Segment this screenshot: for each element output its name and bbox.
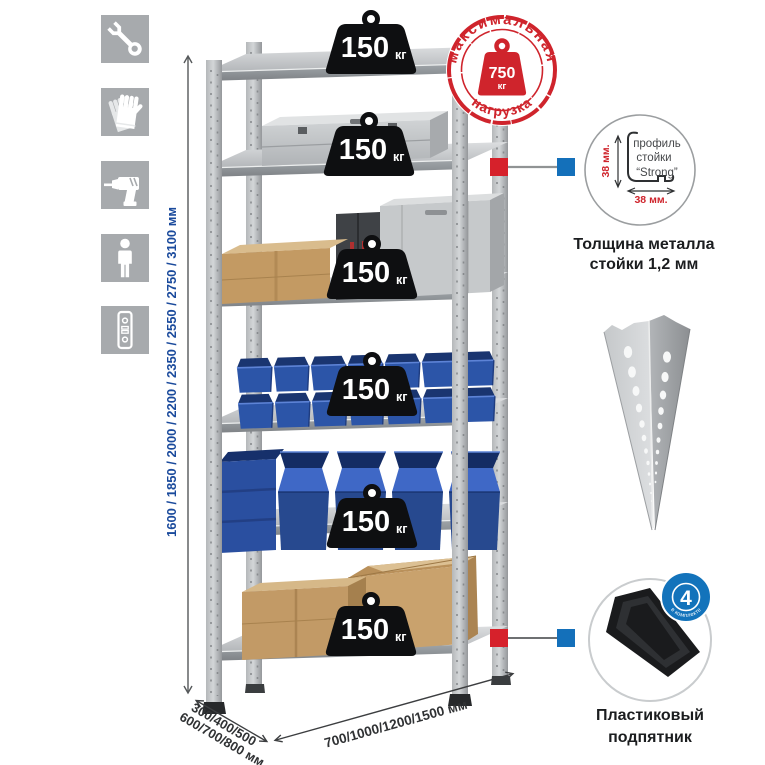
depth-dimension-label: 300/400/500 600/700/800 мм <box>177 697 274 765</box>
width-dimension-line <box>274 670 514 743</box>
svg-text:профиль: профиль <box>633 138 681 150</box>
svg-text:кг: кг <box>393 150 404 164</box>
plastic-foot-detail: 4 в комплекте <box>589 572 711 701</box>
svg-text:“Strong”: “Strong” <box>636 167 678 179</box>
svg-text:кг: кг <box>396 390 407 404</box>
foot-caption-line2: подпятник <box>608 729 693 746</box>
svg-text:150: 150 <box>342 257 390 289</box>
svg-text:150: 150 <box>342 374 390 406</box>
angle-post-image <box>604 315 690 530</box>
quantity-badge: 4 в комплекте <box>661 572 711 622</box>
svg-text:кг: кг <box>395 630 406 644</box>
product-infographic: 150 кг 150 кг 150 кг 150 кг 150 кг <box>0 0 765 765</box>
foot-callout-connector <box>490 629 575 647</box>
width-dimension-label: 700/1000/1200/1500 мм <box>323 697 469 751</box>
foot-caption-line1: Пластиковый <box>596 707 704 724</box>
svg-text:кг: кг <box>396 273 407 287</box>
svg-text:150: 150 <box>342 506 390 538</box>
profile-dim-horizontal: 38 мм. <box>634 194 667 206</box>
blue-marker-top <box>557 158 575 176</box>
rack-diagram: 150 кг 150 кг 150 кг 150 кг 150 кг <box>0 0 765 765</box>
load-value: 150 <box>341 32 389 64</box>
svg-text:кг: кг <box>396 522 407 536</box>
svg-text:стойки: стойки <box>636 152 671 164</box>
profile-dim-vertical: 38 мм. <box>600 144 612 177</box>
svg-text:750: 750 <box>489 65 516 82</box>
svg-text:кг: кг <box>498 81 507 92</box>
height-dimension-label: 1600 / 1850 / 2000 / 2200 / 2350 / 2550 … <box>164 207 179 537</box>
load-unit: кг <box>395 48 406 62</box>
quantity-value: 4 <box>680 587 692 610</box>
height-dimension-line <box>184 56 192 693</box>
svg-text:150: 150 <box>339 134 387 166</box>
load-badge-1: 150 кг <box>326 13 416 75</box>
red-marker-bottom <box>490 629 508 647</box>
profile-caption-line2: стойки 1,2 мм <box>590 256 699 273</box>
svg-text:150: 150 <box>341 614 389 646</box>
profile-caption-line1: Толщина металла <box>573 236 714 253</box>
profile-detail: 38 мм. 38 мм. профиль стойки “Strong” <box>585 115 695 225</box>
red-marker-top <box>490 158 508 176</box>
blue-marker-bottom <box>557 629 575 647</box>
profile-callout-connector <box>490 158 575 176</box>
